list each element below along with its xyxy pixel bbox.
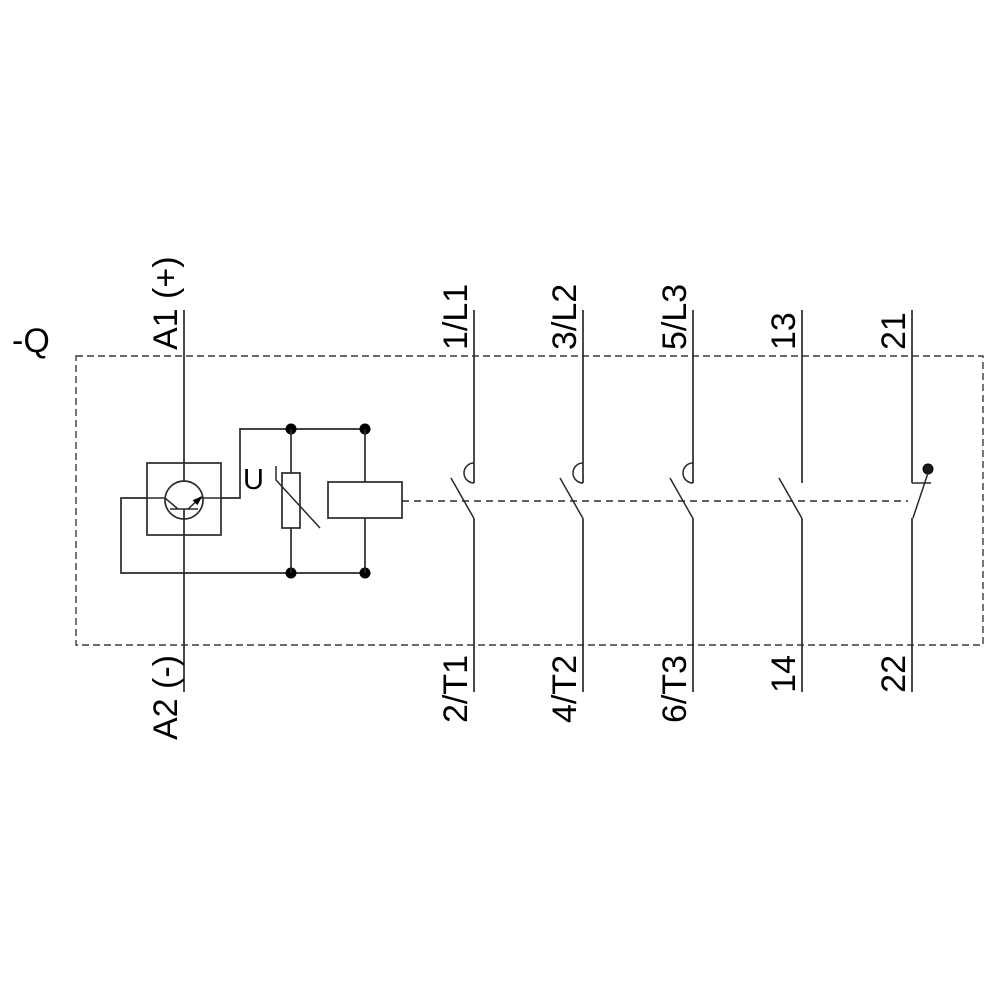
varistor-icon: [276, 429, 320, 573]
pole-top-label: 13: [765, 312, 803, 350]
contactor-schematic: -Q A1 (+) A2 (-): [0, 0, 1000, 1000]
contact-blade-icon: [670, 478, 693, 519]
contact-blade-icon: [779, 478, 802, 519]
pole-main-5l3-6t3: 5/L3 6/T3: [656, 284, 694, 723]
nc-contact-dot-icon: [923, 464, 933, 474]
contact-blade-icon: [913, 473, 928, 518]
terminal-a1-label: A1 (+): [147, 256, 185, 350]
pole-bottom-label: 4/T2: [546, 655, 584, 723]
varistor-label: U: [243, 464, 264, 496]
pole-main-3l2-4t2: 3/L2 4/T2: [546, 284, 584, 723]
pole-top-label: 3/L2: [546, 284, 584, 350]
pole-main-1l1-2t1: 1/L1 2/T1: [437, 284, 475, 723]
coil-icon: [328, 429, 402, 573]
coil-body: [328, 482, 402, 518]
schematic-page: -Q A1 (+) A2 (-): [0, 0, 1000, 1000]
contact-arc-icon: [573, 463, 583, 483]
pole-top-label: 5/L3: [656, 284, 694, 350]
terminal-a2-label: A2 (-): [147, 655, 185, 740]
pole-bottom-label: 22: [875, 655, 913, 693]
contact-blade-icon: [451, 478, 474, 519]
contact-arc-icon: [464, 463, 474, 483]
pole-bottom-label: 6/T3: [656, 655, 694, 723]
pole-top-label: 1/L1: [437, 284, 475, 350]
pole-top-label: 21: [875, 312, 913, 350]
pole-aux-no-13-14: 13 14: [765, 310, 803, 693]
varistor-body: [282, 473, 300, 528]
pole-bottom-label: 2/T1: [437, 655, 475, 723]
device-label: -Q: [12, 322, 50, 360]
pole-bottom-label: 14: [765, 655, 803, 693]
contact-arc-icon: [683, 463, 693, 483]
contact-blade-icon: [560, 478, 583, 519]
